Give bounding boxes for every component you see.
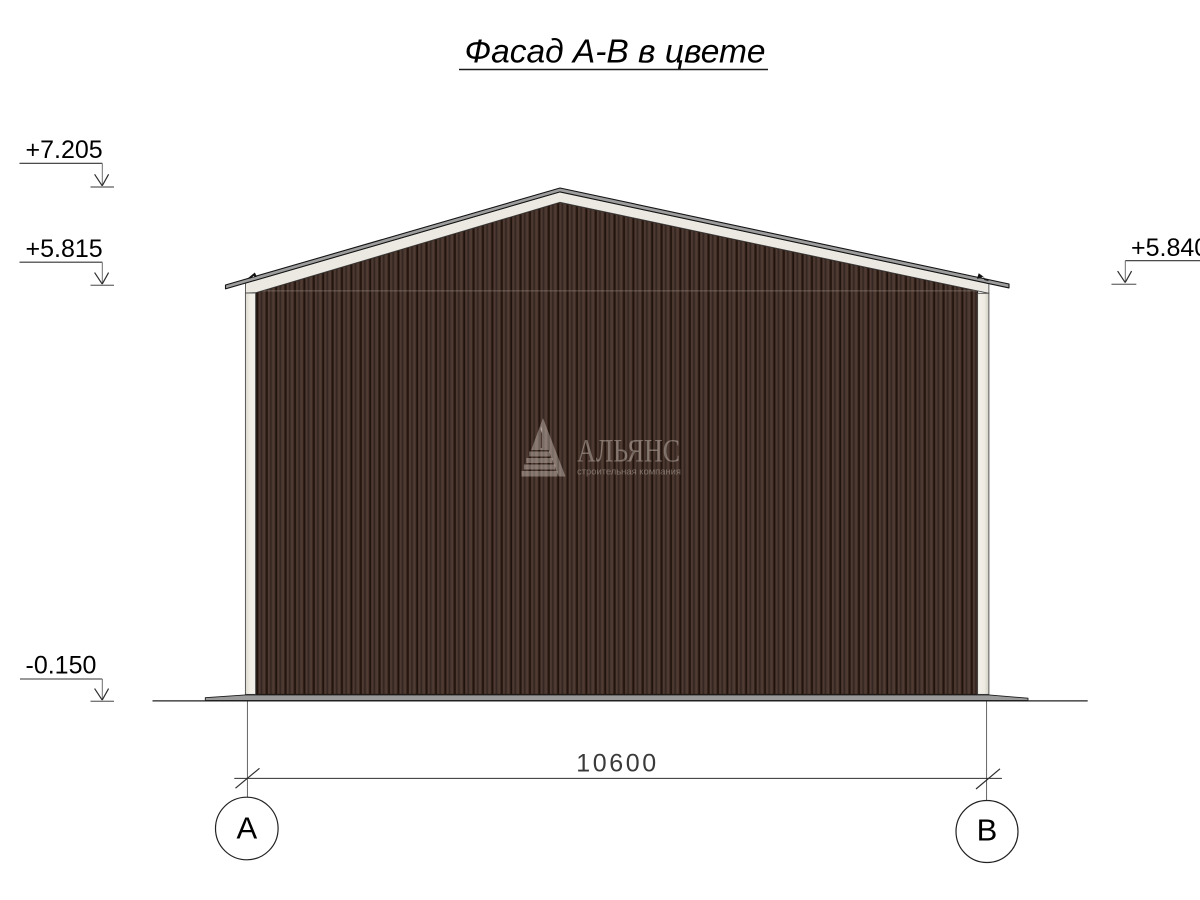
svg-text:Фасад А-В в цвете: Фасад А-В в цвете: [464, 34, 765, 71]
svg-text:АЛЬЯНС: АЛЬЯНС: [577, 433, 680, 469]
svg-text:-0.150: -0.150: [26, 652, 97, 680]
svg-text:В: В: [977, 813, 998, 848]
svg-text:А: А: [236, 811, 257, 846]
svg-text:10600: 10600: [576, 750, 659, 778]
svg-text:+5.840: +5.840: [1131, 234, 1200, 262]
svg-text:+5.815: +5.815: [26, 235, 103, 263]
svg-text:строительная компания: строительная компания: [577, 466, 681, 477]
svg-text:+7.205: +7.205: [26, 136, 103, 164]
